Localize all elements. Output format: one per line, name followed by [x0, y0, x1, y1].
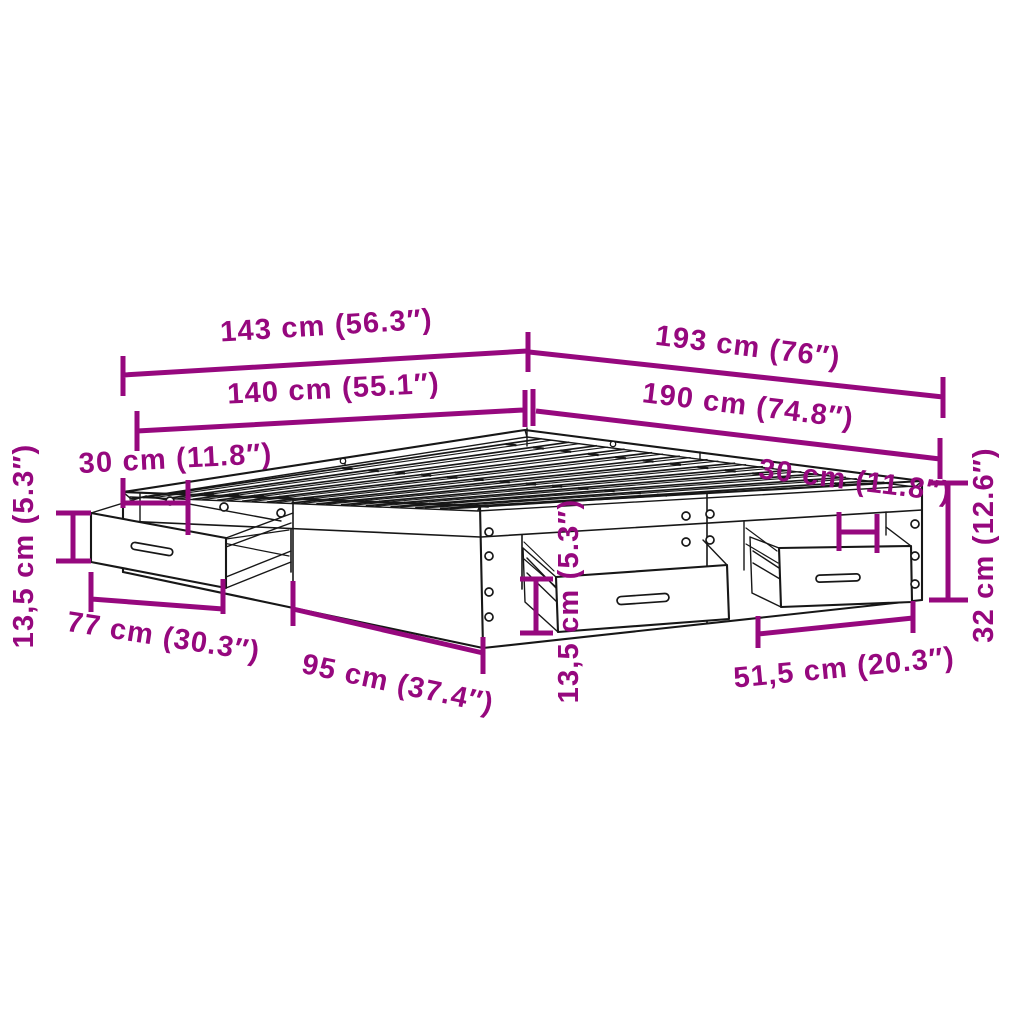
screw-hole — [911, 580, 919, 588]
dim-right-drawer-offset-label: 30 cm (11.8″) — [757, 453, 953, 508]
right-drawer — [750, 527, 912, 607]
slat-line — [552, 486, 562, 487]
slat-line — [578, 488, 588, 489]
dim-slat-width-label: 140 cm (55.1″) — [226, 367, 440, 410]
slat-line — [526, 484, 536, 485]
dim-side-panel-width: 95 cm (37.4″) — [293, 581, 497, 720]
screw-hole — [706, 510, 714, 518]
screw-hole — [485, 588, 493, 596]
slat-line — [670, 464, 681, 465]
dim-left-drawer-height-bracket — [56, 513, 91, 561]
screw-hole — [485, 613, 493, 621]
dim-overall-width-label: 143 cm (56.3″) — [219, 304, 433, 349]
slat-line — [561, 451, 572, 452]
slat-line — [643, 460, 654, 461]
dim-frame-height-label: 32 cm (12.6″) — [968, 447, 1000, 643]
dim-front-drawer-height-label: 13,5 cm (5.3″) — [553, 499, 585, 704]
rim-hole — [610, 441, 615, 446]
slat-line — [533, 447, 544, 448]
dim-left-drawer-width-label: 77 cm (30.3″) — [64, 606, 262, 668]
right-drawer-handle — [816, 574, 860, 583]
screw-hole — [485, 528, 493, 536]
slat-line — [698, 467, 709, 468]
dim-left-drawer-width: 77 cm (30.3″) — [64, 572, 262, 668]
slat-line — [615, 457, 626, 458]
screw-hole — [485, 552, 493, 560]
slat-line — [369, 470, 379, 471]
screw-hole — [911, 520, 919, 528]
slat-line — [725, 470, 736, 471]
slat-line — [473, 479, 483, 480]
screw-hole — [682, 538, 690, 546]
screw-hole — [277, 509, 285, 517]
slat-line — [588, 454, 599, 455]
dim-left-drawer-height-label: 13,5 cm (5.3″) — [8, 444, 40, 649]
dim-front-drawer-height: 13,5 cm (5.3″) — [520, 499, 585, 704]
slat-line — [500, 481, 510, 482]
left-drawer — [91, 496, 293, 588]
dimension-annotations: 143 cm (56.3″) 193 cm (76″) 140 cm (55.1… — [8, 304, 1000, 721]
dim-right-drawer-width-label: 51,5 cm (20.3″) — [732, 641, 956, 694]
slat-line — [204, 493, 214, 494]
rim-hole — [340, 458, 345, 463]
slat-line — [631, 493, 641, 494]
screw-hole — [911, 552, 919, 560]
bed-frame-dimension-diagram: 143 cm (56.3″) 193 cm (76″) 140 cm (55.1… — [0, 0, 1024, 1024]
screw-hole — [682, 512, 690, 520]
dim-right-drawer-offset: 30 cm (11.8″) — [757, 453, 953, 553]
slat-line — [342, 468, 352, 469]
slat-line — [447, 477, 457, 478]
screw-hole — [220, 503, 228, 511]
slat-line — [395, 473, 405, 474]
slat-line — [421, 475, 431, 476]
dim-side-panel-width-label: 95 cm (37.4″) — [299, 648, 497, 720]
screw-hole — [706, 536, 714, 544]
dim-right-drawer-width: 51,5 cm (20.3″) — [732, 601, 956, 695]
slat-line — [506, 444, 517, 445]
slat-line — [604, 490, 614, 491]
dim-right-drawer-width-line — [758, 601, 913, 648]
